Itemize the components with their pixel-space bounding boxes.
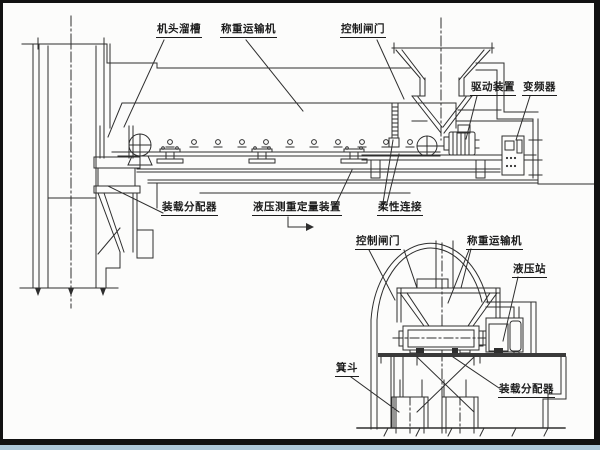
leader-loading-distributor-main xyxy=(108,186,163,213)
label-frequency-converter: 变频器 xyxy=(522,82,557,96)
leader-control-gate-main xyxy=(377,40,404,99)
flexible-connection-parts xyxy=(389,103,399,147)
feed-hopper-main xyxy=(392,18,494,140)
leader-hydraulic-weighing-device xyxy=(336,170,352,204)
section-distributor-and-skips xyxy=(392,357,478,433)
frame-right xyxy=(594,0,600,444)
label-flexible-connection: 柔性连接 xyxy=(377,202,423,216)
leader-weighing-conveyor-main xyxy=(246,40,303,111)
label-weighing-conveyor-section: 称重运输机 xyxy=(466,236,523,250)
bottom-strip xyxy=(0,445,600,450)
label-control-gate-section: 控制闸门 xyxy=(355,236,401,250)
label-skip: 箕斗 xyxy=(335,363,359,377)
label-hydraulic-station: 液压站 xyxy=(512,264,547,278)
weighing-conveyor-main xyxy=(108,103,456,165)
label-control-gate-main: 控制闸门 xyxy=(340,24,386,38)
leader-loading-distributor-section xyxy=(453,357,499,388)
section-conveyor xyxy=(393,326,492,353)
leader-frequency-converter xyxy=(516,96,530,140)
frequency-converter-cabinet xyxy=(502,136,524,175)
label-head-chute: 机头溜槽 xyxy=(156,24,202,38)
frame-top xyxy=(0,0,600,3)
frame-left xyxy=(0,0,3,444)
label-hydraulic-weighing-device: 液压测重定量装置 xyxy=(252,202,342,216)
belt-rollers xyxy=(166,140,414,147)
label-weighing-conveyor-main: 称重运输机 xyxy=(220,24,277,38)
hydraulic-station xyxy=(479,318,523,353)
label-loading-distributor-section: 装载分配器 xyxy=(498,384,555,398)
load-cell-supports xyxy=(157,147,367,163)
flow-direction-arrow xyxy=(288,217,314,231)
leader-head-chute xyxy=(124,40,164,127)
loading-distributor-main xyxy=(94,126,153,288)
label-drive-unit: 驱动装置 xyxy=(470,82,516,96)
hoist-shaft xyxy=(20,16,410,308)
leader-skip xyxy=(351,377,399,412)
diagram-page: 机头溜槽 称重运输机 控制闸门 驱动装置 变频器 装载分配器 液压测重定量装置 … xyxy=(0,0,600,450)
label-loading-distributor-main: 装载分配器 xyxy=(161,202,218,216)
leader-weighing-conveyor-section xyxy=(448,250,469,303)
